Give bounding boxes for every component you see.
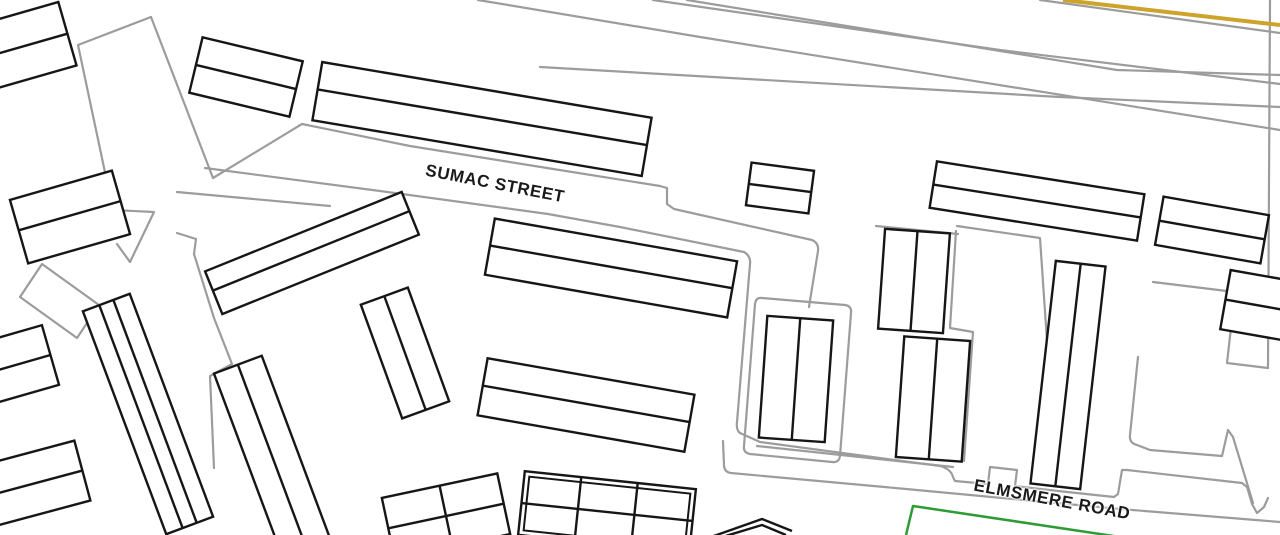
building-footprint-bldg-left-tall [83, 294, 213, 534]
building-footprint-bldg-southwest [0, 441, 90, 526]
building-footprint-bldg-block-south [896, 336, 970, 461]
accent-road-line [1063, 0, 1280, 25]
building-footprint-bldg-square-small [746, 163, 814, 214]
building-footprint-bldg-block-north [878, 229, 950, 333]
parcel-boundary-path [540, 67, 1280, 107]
building-footprint-bldg-far-east-lower [1220, 270, 1280, 340]
building-footprint-bldg-east-long [930, 161, 1145, 240]
parcel-boundary-path [177, 192, 330, 206]
building-footprint-bldg-block-west [759, 316, 833, 442]
green-boundary-line [906, 506, 1120, 535]
building-footprint-bldg-center-long-s [478, 358, 695, 452]
building-footprint-bldg-far-east [1155, 197, 1269, 264]
map-canvas[interactable]: SUMAC STREET ELMSMERE ROAD [0, 0, 1280, 535]
building-footprint-bldg-tall-east [1030, 261, 1105, 489]
map-vector-layer [0, 0, 1280, 535]
building-footprint-bldg-sumac-long [312, 62, 651, 176]
building-footprint-bldg-left-tall-2 [214, 356, 330, 535]
parcel-boundary-path [687, 0, 1280, 75]
building-footprint-bldg-top-small [189, 37, 302, 116]
building-footprint-bldg-center-pair [361, 288, 449, 419]
building-footprint-bldg-bottom-terrace [518, 471, 696, 535]
building-footprint-bldg-center-long-n [485, 219, 737, 318]
building-footprint-bldg-bottom-grid [382, 473, 510, 535]
building-footprint-bldg-nw-corner [0, 2, 77, 88]
building-footprint-bldg-west-edge [0, 325, 59, 407]
parcel-boundary-path [1040, 0, 1280, 33]
building-footprint-bldg-west-small [10, 171, 130, 264]
